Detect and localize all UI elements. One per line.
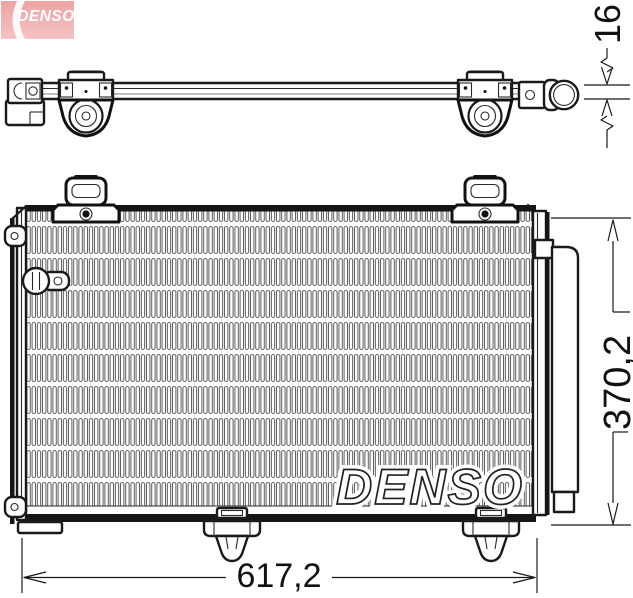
dimension-depth-label: 16: [587, 4, 628, 44]
pipe-fitting-left: [23, 268, 69, 294]
top-view-left-connector: [6, 79, 44, 125]
top-view-mounting-bracket-left: [59, 71, 113, 137]
dimension-width: 617,2: [22, 538, 537, 595]
mounting-bracket-top-left: [53, 175, 119, 222]
dimension-width-label: 617,2: [236, 557, 321, 595]
mounting-bracket-top-right: [452, 175, 518, 222]
logo-brand-text: DENSO: [17, 8, 75, 25]
denso-watermark: DENSO DENSO: [336, 459, 524, 515]
front-view: DENSO DENSO: [5, 175, 578, 561]
dimension-depth: 16: [584, 4, 630, 148]
dimension-height-label: 370,2: [597, 335, 633, 430]
top-view-mounting-bracket-right: [458, 71, 512, 137]
mounting-tab-lower-left: [5, 497, 26, 517]
condenser-technical-drawing: DENSO: [0, 0, 633, 598]
condenser-product-image: DENSO: [0, 0, 633, 598]
mounting-tab-upper-left: [5, 226, 26, 246]
left-side-plate: [10, 206, 26, 524]
top-view: [6, 71, 578, 137]
watermark-text: DENSO: [336, 459, 524, 515]
top-view-pipe-ring-connector: [519, 80, 578, 110]
denso-logo: DENSO: [1, 1, 75, 39]
